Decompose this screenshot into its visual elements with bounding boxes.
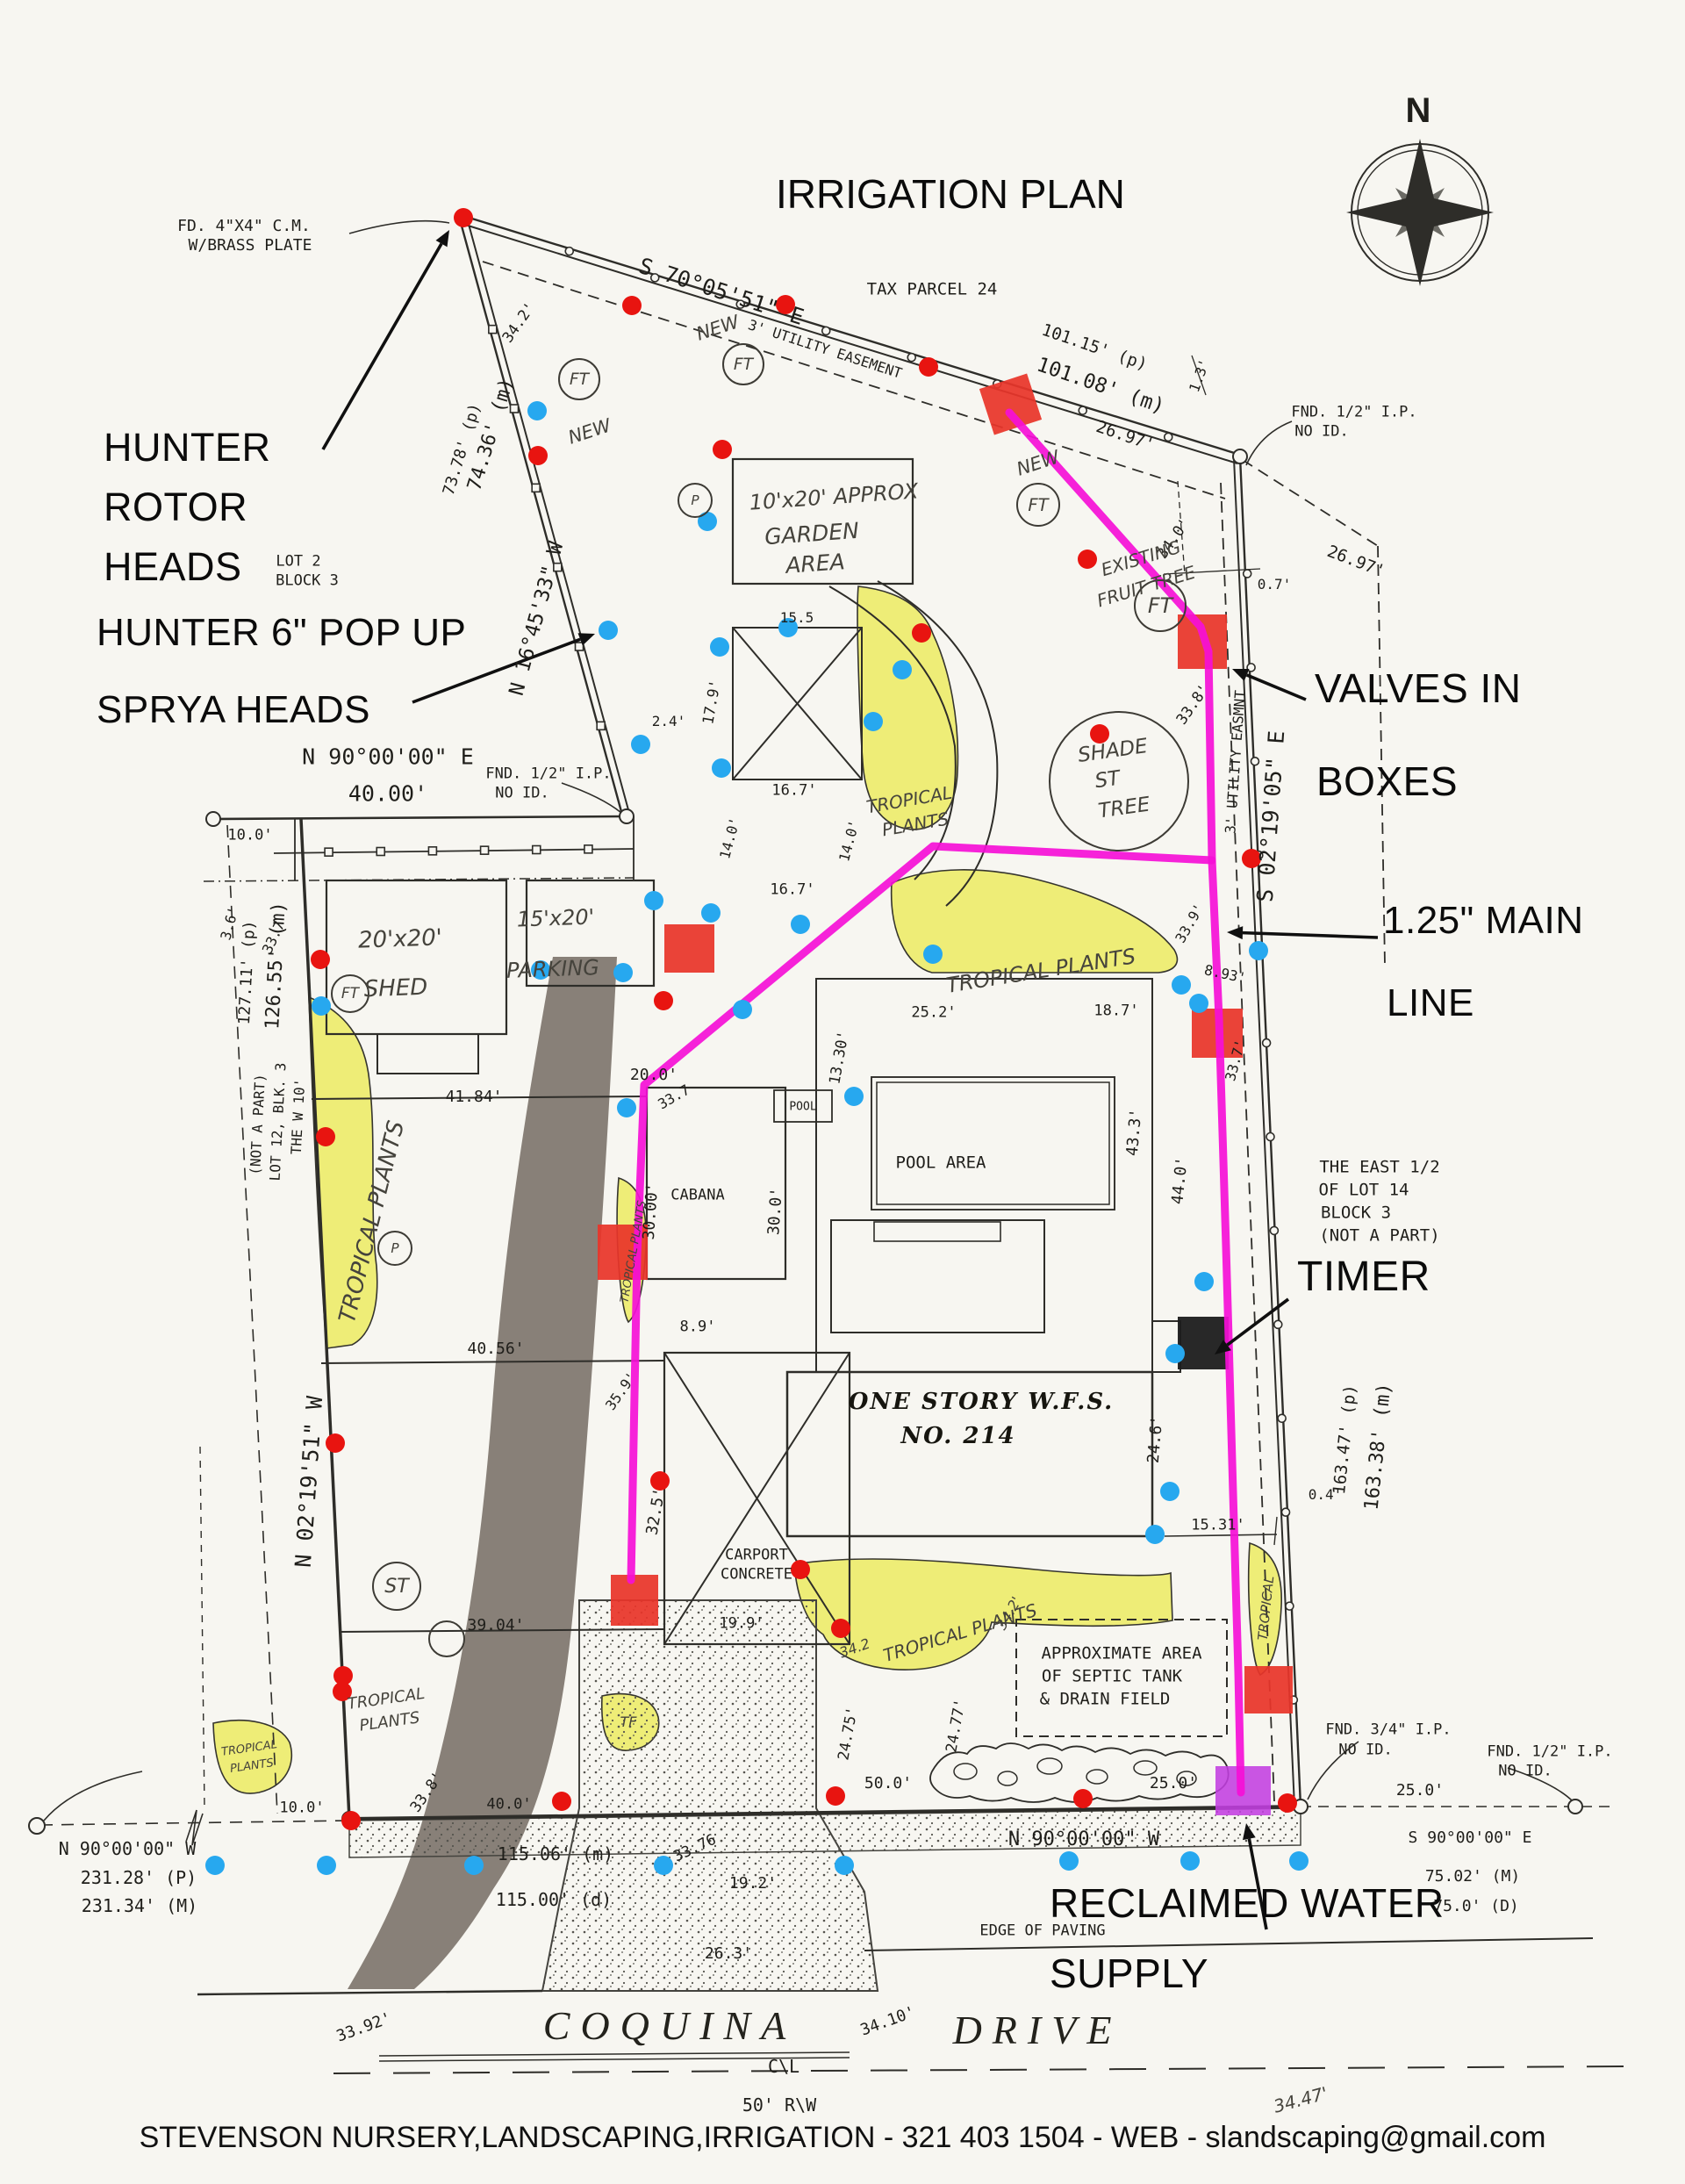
handwritten-label: TREE bbox=[1097, 794, 1151, 822]
survey-label: 33.8' bbox=[408, 1770, 446, 1815]
survey-label: & DRAIN FIELD bbox=[1040, 1692, 1171, 1708]
survey-label: 14.0' bbox=[837, 819, 862, 864]
handwritten-label: PARKING bbox=[506, 957, 600, 981]
survey-label: 33.76 bbox=[671, 1832, 719, 1864]
handwritten-label: PLANTS bbox=[880, 809, 950, 838]
survey-label: 33.9' bbox=[1173, 902, 1207, 945]
handwritten-label: 10'x20' APPROX bbox=[749, 480, 919, 513]
handwritten-label: TROPICAL bbox=[220, 1739, 277, 1758]
survey-label: 25.0' bbox=[1150, 1776, 1197, 1792]
handwritten-label: ST bbox=[1093, 769, 1122, 793]
survey-label: 40.0' bbox=[486, 1798, 531, 1813]
annotation-label: SUPPLY bbox=[1050, 1952, 1208, 1994]
survey-label: 19.9' bbox=[719, 1617, 764, 1632]
survey-label: 24.6' bbox=[1146, 1415, 1166, 1464]
survey-label: 32.5' bbox=[644, 1487, 668, 1536]
survey-label: N bbox=[1406, 93, 1431, 128]
survey-label: 3' UTILITY EASEMENT bbox=[746, 318, 903, 381]
survey-label: N 02°19'51" W bbox=[292, 1396, 326, 1569]
survey-label: 34.2' bbox=[500, 300, 538, 346]
survey-label: NO ID. bbox=[495, 787, 549, 801]
survey-label: 43.3' bbox=[1125, 1108, 1145, 1157]
survey-label: APPROXIMATE AREA bbox=[1041, 1646, 1201, 1663]
survey-label: 50.0' bbox=[864, 1776, 912, 1792]
survey-label: 115.00' (d) bbox=[496, 1891, 612, 1908]
survey-label: 24.75' bbox=[836, 1706, 860, 1761]
survey-label: 13.30' bbox=[828, 1030, 851, 1085]
survey-label: OF SEPTIC TANK bbox=[1042, 1669, 1182, 1685]
survey-label: 115.06' (m) bbox=[498, 1845, 613, 1863]
handwritten-label: 20'x20' bbox=[358, 926, 443, 952]
handwritten-label: TROPICAL PLANTS bbox=[336, 1118, 408, 1325]
survey-label: TAX PARCEL 24 bbox=[867, 282, 998, 298]
survey-label: OF LOT 14 bbox=[1319, 1182, 1409, 1199]
page-title: IRRIGATION PLAN bbox=[776, 170, 1125, 218]
survey-label: 16.7' bbox=[770, 883, 814, 898]
survey-label: POOL bbox=[789, 1102, 816, 1113]
survey-label: 127.11' (p) bbox=[237, 920, 258, 1025]
survey-label: 3' UTILITY EASMNT bbox=[1223, 690, 1247, 834]
survey-label: NO ID. bbox=[1294, 425, 1348, 440]
handwritten-label: SHADE bbox=[1077, 736, 1149, 766]
survey-label: N 90°00'00" E bbox=[302, 746, 474, 768]
handwritten-label: NEW bbox=[694, 313, 742, 343]
survey-label: THE W 10' bbox=[290, 1078, 308, 1154]
annotation-label: HUNTER bbox=[104, 427, 271, 468]
survey-label: 16.7' bbox=[771, 784, 816, 799]
annotation-label: LINE bbox=[1387, 983, 1474, 1024]
survey-label: N 90°00'00" W bbox=[1008, 1830, 1159, 1850]
survey-label: C\L bbox=[768, 2058, 799, 2075]
survey-label: CONCRETE bbox=[721, 1568, 792, 1583]
annotation-label: VALVES IN bbox=[1315, 667, 1521, 709]
survey-label: 0.7' bbox=[1258, 578, 1292, 592]
survey-label: LOT 2 bbox=[276, 555, 320, 570]
survey-label: S 90°00'00" E bbox=[1409, 1830, 1532, 1846]
handwritten-label: 34.47' bbox=[1272, 2084, 1330, 2116]
survey-label: FND. 1/2" I.P. bbox=[485, 767, 611, 782]
survey-label: 19.2' bbox=[729, 1876, 777, 1892]
survey-label: FD. 4"X4" C.M. bbox=[177, 219, 311, 234]
survey-label: 34.10' bbox=[858, 2004, 917, 2038]
survey-label: 40.00' bbox=[348, 783, 427, 805]
survey-label: BLOCK 3 bbox=[276, 574, 339, 589]
survey-label: THE EAST 1/2 bbox=[1319, 1160, 1439, 1176]
survey-label: 20.0' bbox=[630, 1067, 678, 1083]
handwritten-label: NEW bbox=[1015, 448, 1062, 478]
survey-label: 1.3' bbox=[1187, 357, 1212, 394]
survey-label: NO ID. bbox=[1498, 1764, 1552, 1779]
survey-label: 33.7' bbox=[1223, 1038, 1248, 1083]
survey-label: 10.0' bbox=[279, 1801, 324, 1816]
survey-label: 41.84' bbox=[445, 1089, 502, 1105]
survey-label: 8.93' bbox=[1203, 963, 1247, 986]
handwritten-label: TROPICAL bbox=[1257, 1575, 1277, 1641]
survey-label: 231.28' (P) bbox=[81, 1869, 197, 1886]
survey-label: W/BRASS PLATE bbox=[189, 238, 312, 254]
handwritten-label: GARDEN bbox=[764, 520, 859, 548]
survey-label: 33.8' bbox=[1174, 682, 1212, 728]
survey-label: NO. 214 bbox=[900, 1425, 1015, 1448]
survey-label: 8.9' bbox=[680, 1320, 716, 1335]
survey-label: S 02°19'05" E bbox=[1254, 730, 1288, 903]
survey-label: (NOT A PART) bbox=[248, 1074, 268, 1175]
survey-label: FND. 3/4" I.P. bbox=[1325, 1723, 1451, 1738]
handwritten-label: 15'x20' bbox=[516, 906, 594, 930]
survey-label: 163.47' (p) bbox=[1331, 1383, 1359, 1495]
survey-label: 3.6' bbox=[219, 905, 240, 941]
survey-label: 163.38' (m) bbox=[1362, 1382, 1395, 1511]
annotation-label: SPRYA HEADS bbox=[97, 690, 370, 730]
annotation-label: 1.25" MAIN bbox=[1383, 901, 1583, 941]
survey-label: COQUINA bbox=[543, 2006, 796, 2046]
survey-label: 39.04' bbox=[467, 1618, 524, 1634]
survey-label: 18.7' bbox=[1093, 1004, 1138, 1019]
survey-label: 101.08' (m) bbox=[1034, 355, 1167, 417]
handwritten-label: PLANTS bbox=[229, 1757, 274, 1775]
survey-label: 17.9' bbox=[701, 679, 724, 725]
survey-label: FND. 1/2" I.P. bbox=[1291, 406, 1416, 420]
handwritten-label: TF bbox=[620, 1715, 637, 1729]
survey-label: 10.0' bbox=[227, 829, 272, 844]
survey-label: 30.0' bbox=[766, 1187, 785, 1235]
survey-label: 15.5 bbox=[780, 611, 814, 625]
footer-credit: STEVENSON NURSERY,LANDSCAPING,IRRIGATION… bbox=[0, 2121, 1685, 2155]
survey-label: NO ID. bbox=[1338, 1743, 1392, 1758]
irrigation-plan-canvas: FTFTFTFTFTPPST FD. 4"X4" C.M.W/BRASS PLA… bbox=[0, 0, 1685, 2184]
survey-label: 26.97' bbox=[1325, 543, 1387, 580]
survey-label: 14.0' bbox=[718, 816, 742, 861]
survey-label: N 16°45'33" W bbox=[507, 540, 568, 698]
survey-label: 15.31' bbox=[1191, 1519, 1244, 1534]
handwritten-label: SHED bbox=[363, 976, 427, 1002]
annotation-label: HUNTER 6" POP UP bbox=[97, 613, 466, 653]
survey-label: EDGE OF PAVING bbox=[979, 1924, 1105, 1939]
survey-label: ONE STORY W.F.S. bbox=[849, 1390, 1114, 1413]
survey-label: CABANA bbox=[670, 1189, 724, 1203]
survey-label: LOT 12, BLK. 3 bbox=[268, 1062, 288, 1182]
survey-label: 25.2' bbox=[911, 1006, 956, 1021]
survey-label: 75.0' (D) bbox=[1433, 1899, 1519, 1915]
survey-label: (NOT A PART) bbox=[1319, 1228, 1439, 1245]
survey-label: 231.34' (M) bbox=[82, 1897, 197, 1915]
handwritten-label: NEW bbox=[566, 416, 613, 447]
survey-label: 24.77' bbox=[944, 1698, 968, 1753]
survey-label: 26.97' bbox=[1093, 419, 1156, 454]
survey-label: 33.92' bbox=[334, 2010, 393, 2044]
survey-label: 40.56' bbox=[467, 1341, 524, 1357]
annotation-label: RECLAIMED WATER bbox=[1050, 1882, 1445, 1924]
annotation-label: ROTOR bbox=[104, 486, 247, 528]
survey-label: 25.0' bbox=[1396, 1783, 1444, 1799]
annotation-label: BOXES bbox=[1316, 760, 1458, 802]
handwritten-label: TROPICAL PLANTS bbox=[619, 1200, 648, 1304]
survey-label: DRIVE bbox=[953, 2010, 1122, 2051]
survey-label: 35.9' bbox=[604, 1370, 640, 1413]
handwritten-label: PLANTS bbox=[359, 1710, 421, 1734]
survey-label: 2.4' bbox=[652, 715, 686, 729]
survey-label: 126.55' (m) bbox=[263, 902, 290, 1031]
survey-label: 44.0' bbox=[1170, 1156, 1191, 1205]
annotation-label: HEADS bbox=[104, 546, 242, 587]
annotation-label: TIMER bbox=[1297, 1255, 1430, 1299]
handwritten-label: TROPICAL PLANTS bbox=[944, 945, 1136, 996]
survey-label: N 90°00'00" W bbox=[59, 1840, 197, 1857]
survey-label: CARPORT bbox=[725, 1548, 788, 1563]
survey-label: 33.7 bbox=[656, 1082, 692, 1111]
survey-label: FND. 1/2" I.P. bbox=[1487, 1745, 1612, 1760]
survey-label: POOL AREA bbox=[896, 1155, 986, 1172]
survey-label: 26.3' bbox=[705, 1946, 752, 1962]
handwritten-label: 34.2 bbox=[838, 1636, 872, 1660]
survey-label: BLOCK 3 bbox=[1321, 1205, 1391, 1222]
survey-label: 50' R\W bbox=[742, 2096, 816, 2114]
handwritten-label: AREA bbox=[785, 550, 846, 577]
